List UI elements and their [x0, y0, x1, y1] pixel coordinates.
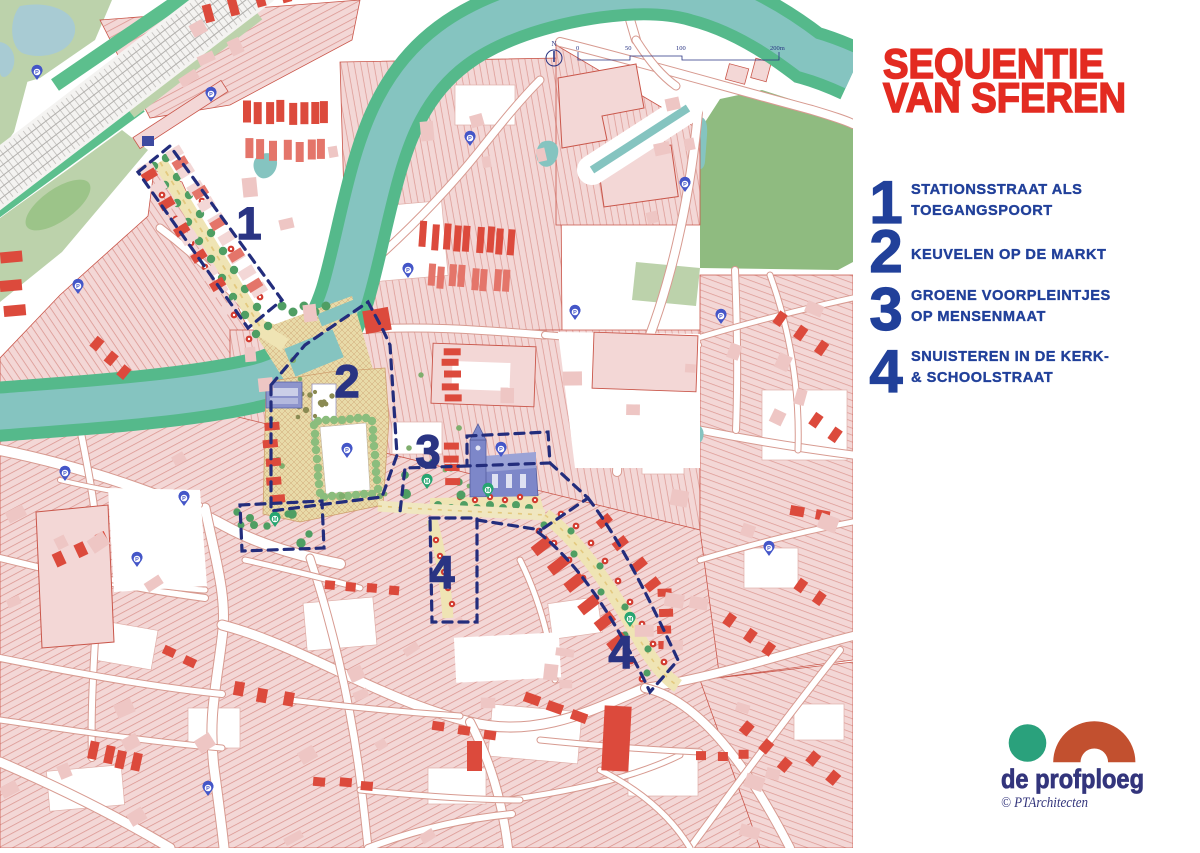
svg-text:3: 3 [415, 426, 440, 477]
svg-text:P: P [468, 136, 472, 142]
svg-text:4: 4 [869, 338, 903, 405]
svg-text:P: P [206, 786, 210, 792]
svg-text:P: P [209, 92, 213, 98]
svg-text:M: M [273, 517, 278, 523]
svg-text:2: 2 [869, 218, 902, 285]
svg-text:0: 0 [576, 45, 579, 52]
svg-text:1: 1 [236, 198, 261, 249]
svg-text:2: 2 [334, 356, 359, 407]
svg-text:P: P [345, 448, 349, 454]
svg-text:200m: 200m [770, 45, 785, 52]
svg-text:P: P [406, 268, 410, 274]
svg-text:N: N [551, 40, 556, 48]
svg-text:P: P [182, 496, 186, 502]
svg-text:de profploeg: de profploeg [1001, 764, 1144, 794]
svg-text:4: 4 [608, 627, 633, 678]
svg-text:VAN SFEREN: VAN SFEREN [883, 74, 1126, 121]
svg-text:KEUVELEN OP DE MARKT: KEUVELEN OP DE MARKT [911, 247, 1106, 263]
svg-text:P: P [35, 70, 39, 76]
svg-text:50: 50 [625, 45, 632, 52]
svg-text:STATIONSSTRAAT ALS: STATIONSSTRAAT ALS [911, 182, 1082, 198]
svg-text:3: 3 [869, 276, 902, 343]
svg-text:OP MENSENMAAT: OP MENSENMAAT [911, 309, 1046, 325]
svg-text:© PTArchitecten: © PTArchitecten [1001, 795, 1088, 811]
svg-text:SNUISTEREN IN DE KERK-: SNUISTEREN IN DE KERK- [911, 349, 1109, 365]
svg-text:P: P [76, 284, 80, 290]
svg-text:& SCHOOLSTRAAT: & SCHOOLSTRAAT [911, 370, 1053, 386]
svg-text:100: 100 [676, 45, 686, 52]
svg-text:P: P [573, 310, 577, 316]
svg-text:M: M [425, 479, 430, 485]
svg-text:4: 4 [429, 547, 454, 598]
svg-text:P: P [499, 447, 503, 453]
svg-text:P: P [719, 314, 723, 320]
svg-text:P: P [135, 557, 139, 563]
svg-text:P: P [767, 546, 771, 552]
svg-text:M: M [628, 617, 633, 623]
svg-text:GROENE VOORPLEINTJES: GROENE VOORPLEINTJES [911, 288, 1111, 304]
svg-text:M: M [486, 488, 491, 494]
svg-text:TOEGANGSPOORT: TOEGANGSPOORT [911, 203, 1053, 219]
svg-text:P: P [63, 471, 67, 477]
svg-text:P: P [683, 182, 687, 188]
